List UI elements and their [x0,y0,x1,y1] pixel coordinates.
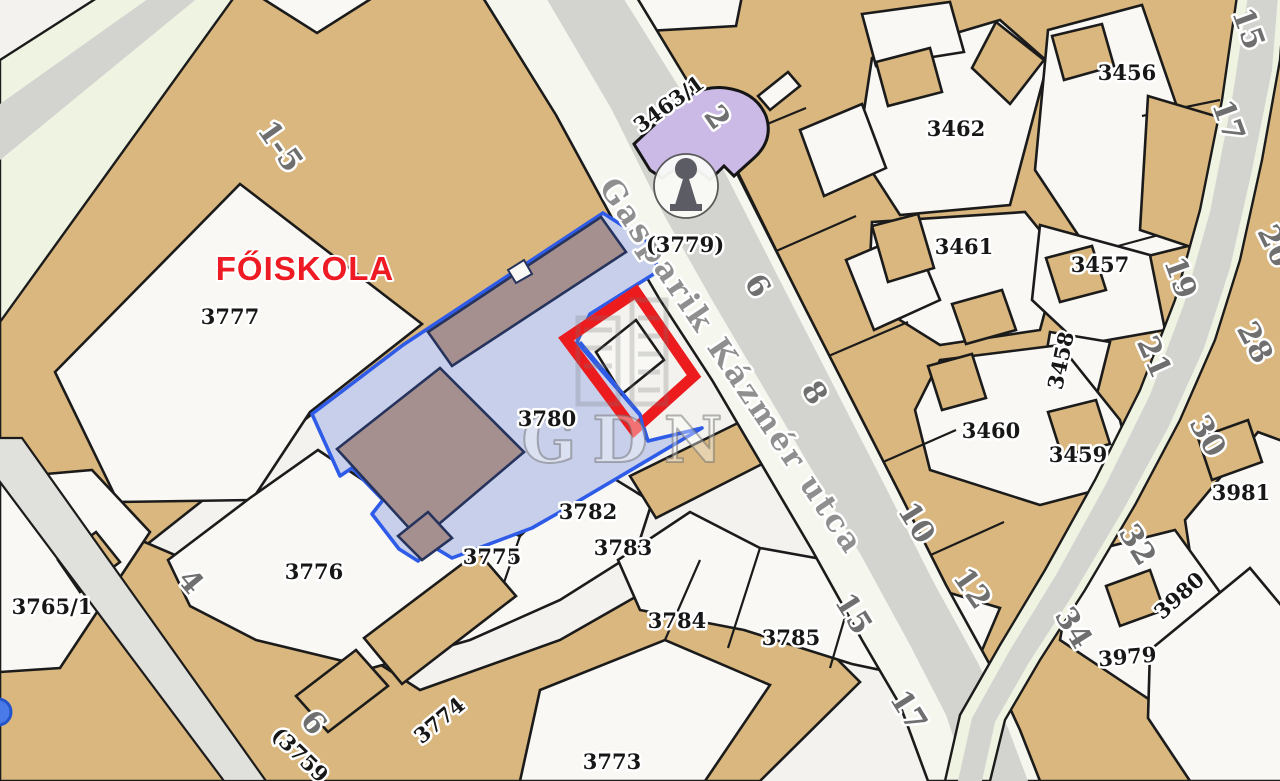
map-canvas[interactable]: FŐISKOLAGasparik Kázmér utcaGDN377737803… [0,0,1280,781]
parcel-label-3779: (3779) [646,232,724,257]
parcel-label-3462: 3462 [927,116,985,141]
parcel-label-3456: 3456 [1098,60,1156,85]
parcel-label-3773: 3773 [583,749,641,774]
parcel-label-3782: 3782 [559,499,617,524]
parcel-label-3784: 3784 [648,608,706,633]
parcel-label-3461: 3461 [935,234,993,259]
parcel-label-3780: 3780 [518,406,576,431]
parcel-label-3981: 3981 [1212,480,1270,505]
parcel-label-3785: 3785 [762,625,820,650]
parcel-label-3459: 3459 [1049,442,1107,467]
parcel-label-3777: 3777 [201,304,259,329]
parcel-label-3776: 3776 [285,559,343,584]
parcel-label-3979: 3979 [1097,642,1157,672]
parcel-label-3783: 3783 [594,535,652,560]
parcel-label-3765-1: 3765/1 [12,594,93,619]
parcel-label-3460: 3460 [962,418,1020,443]
monument-base [670,204,702,211]
poi-foiskola: FŐISKOLA [216,250,395,287]
parcel-label-3457: 3457 [1071,252,1129,277]
parcel-label-3775: 3775 [463,544,521,569]
